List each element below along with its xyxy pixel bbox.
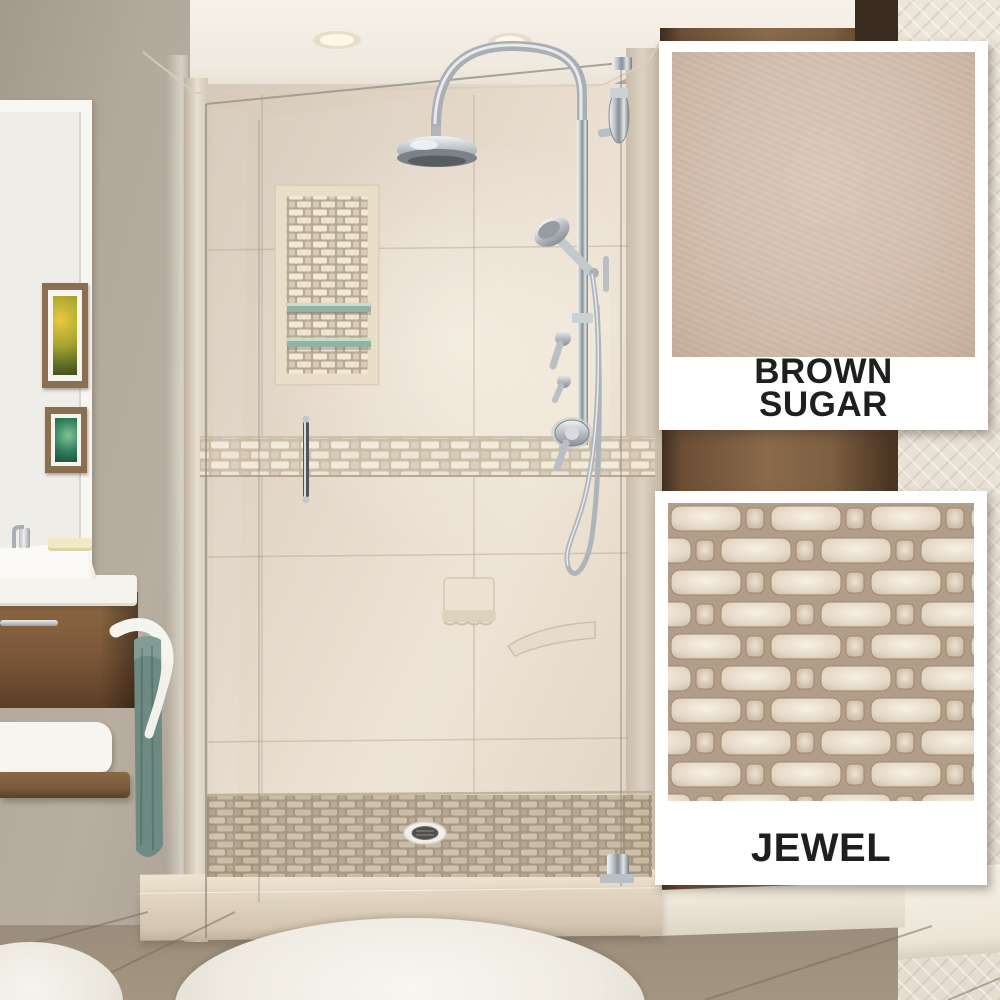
vanity-cabinet — [0, 592, 138, 708]
swatch-label-line: JEWEL — [655, 829, 987, 867]
framed-art-yellow — [42, 283, 88, 388]
soap-bar — [48, 538, 92, 551]
wood-shelf — [0, 772, 130, 798]
folded-white-towels — [0, 722, 112, 774]
shower-wall-light — [230, 150, 610, 570]
jewel-swatch-image — [668, 503, 974, 801]
counter-canister — [19, 528, 30, 548]
product-scene: BROWN SUGAR — [0, 0, 1000, 1000]
swatch-label-line: SUGAR — [659, 388, 988, 422]
art-canvas — [53, 296, 77, 375]
framed-art-green — [45, 407, 87, 473]
brown-sugar-swatch-image — [672, 52, 975, 357]
swatch-label-line: BROWN — [659, 355, 988, 389]
shower-left-pillar — [184, 78, 208, 942]
swatch-label-brown-sugar: BROWN SUGAR — [659, 355, 988, 422]
back-baseboard — [640, 881, 905, 936]
vanity-countertop — [0, 575, 137, 606]
drawer-handle — [0, 620, 58, 626]
art-canvas — [55, 418, 77, 462]
swatch-label-jewel: JEWEL — [655, 829, 987, 867]
swatch-card-brown-sugar[interactable]: BROWN SUGAR — [659, 41, 988, 430]
swatch-card-jewel[interactable]: JEWEL — [655, 491, 987, 885]
